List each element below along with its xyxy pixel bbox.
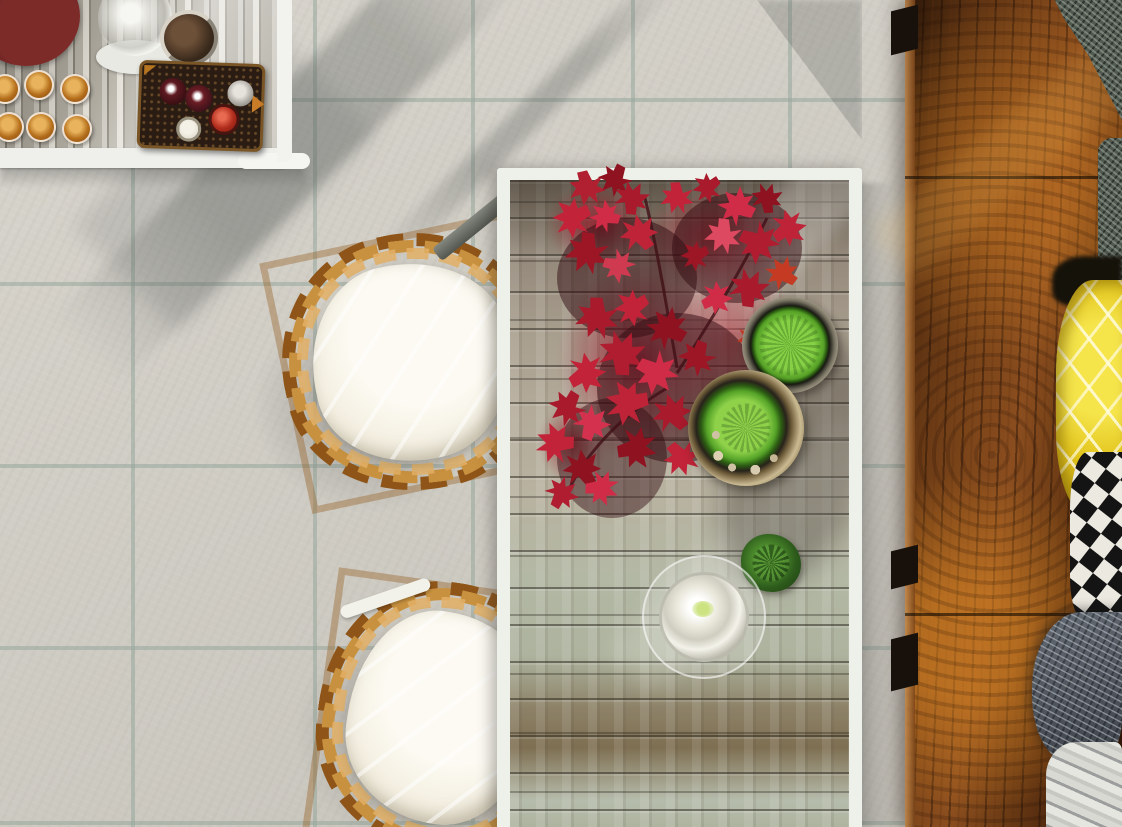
wooden-dining-table <box>497 168 862 827</box>
bottle-serving-tray <box>137 60 266 152</box>
diamond-pattern-pillow <box>1070 452 1122 620</box>
drink-glass <box>60 74 90 104</box>
wooden-bowl <box>160 10 218 66</box>
glass-reflection <box>692 601 714 617</box>
striped-cushion <box>1046 742 1122 827</box>
drinks-side-table <box>0 0 294 172</box>
drink-glass <box>62 114 92 144</box>
succulent-pot-large <box>688 370 804 486</box>
metal-shaker <box>227 80 254 107</box>
bench-bracket <box>891 545 918 590</box>
bench-bracket <box>891 5 918 56</box>
drink-glass <box>24 70 54 100</box>
diamond-pattern <box>1070 452 1122 620</box>
table-cast-shadow <box>858 183 894 827</box>
wine-glass <box>642 555 766 679</box>
tray-corner-accent <box>144 65 156 75</box>
bench-bracket <box>891 633 918 692</box>
wine-bottle <box>185 84 213 112</box>
drink-glass <box>26 112 56 142</box>
white-table-edge <box>238 153 310 169</box>
white-table-edge <box>277 0 292 162</box>
wine-glass-bowl <box>659 572 749 662</box>
wine-bottle <box>159 78 187 106</box>
white-jar <box>176 116 202 142</box>
bench-edge <box>905 0 915 827</box>
tray-corner-accent <box>252 95 265 113</box>
patio-photograph <box>0 0 1122 827</box>
red-bottle <box>208 103 240 135</box>
